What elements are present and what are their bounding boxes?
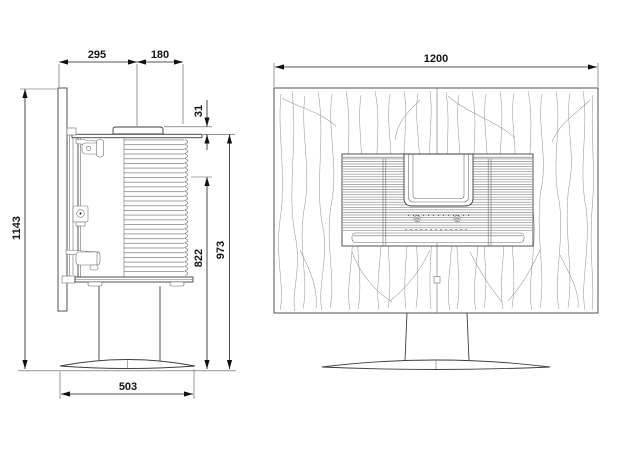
- dimension-total-height: 1143: [11, 89, 57, 369]
- dim-label-973: 973: [215, 241, 227, 259]
- technical-drawing-page: 295 180 31 1143 822 973: [0, 0, 624, 460]
- front-edge-scallop: [184, 140, 193, 276]
- dimension-base-width: 503: [60, 370, 194, 400]
- dimension-body-depth: 180: [137, 49, 183, 124]
- pedestal-front: [322, 313, 550, 370]
- mounting-brackets: [66, 128, 104, 270]
- dimension-back-depth: 295: [59, 49, 137, 126]
- firebox-window: [404, 154, 473, 206]
- top-plate: [72, 134, 202, 137]
- dimension-panel-width: 1200: [274, 53, 598, 87]
- stove-dimension-drawing: 295 180 31 1143 822 973: [0, 0, 624, 460]
- side-ribs: [124, 140, 184, 276]
- dimension-door-height: 822: [191, 177, 212, 369]
- dim-label-180: 180: [151, 49, 169, 61]
- front-view-drawing: [274, 88, 598, 370]
- stove-front: [342, 154, 533, 246]
- dim-label-1143: 1143: [11, 216, 23, 240]
- dim-label-822: 822: [193, 249, 205, 267]
- pedestal-side: [60, 286, 195, 369]
- dim-label-295: 295: [88, 49, 106, 61]
- dim-label-1200: 1200: [424, 53, 448, 65]
- side-view-drawing: [18, 88, 236, 371]
- control-knob-right: [454, 216, 460, 222]
- control-knob-left: [414, 216, 420, 222]
- top-cap: [113, 127, 163, 134]
- dim-label-31: 31: [193, 105, 205, 117]
- dimension-top-height: 973: [215, 135, 232, 370]
- dim-label-503: 503: [119, 381, 137, 393]
